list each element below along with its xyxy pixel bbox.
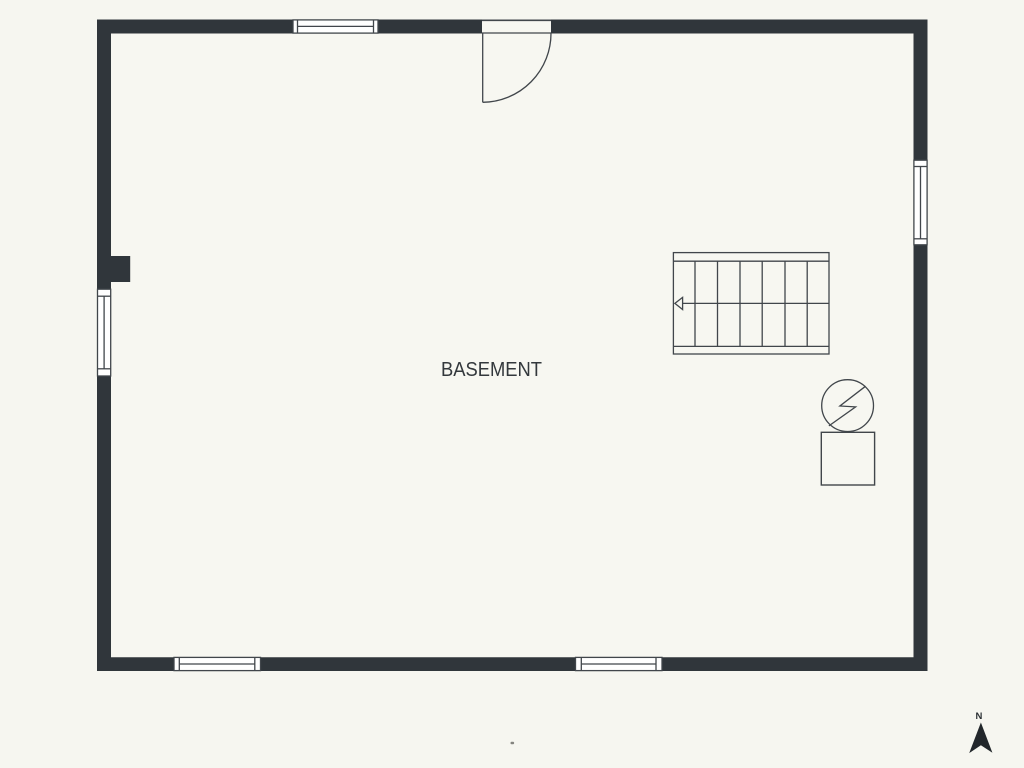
svg-text:N: N	[976, 711, 983, 722]
svg-text:BASEMENT: BASEMENT	[441, 358, 542, 381]
